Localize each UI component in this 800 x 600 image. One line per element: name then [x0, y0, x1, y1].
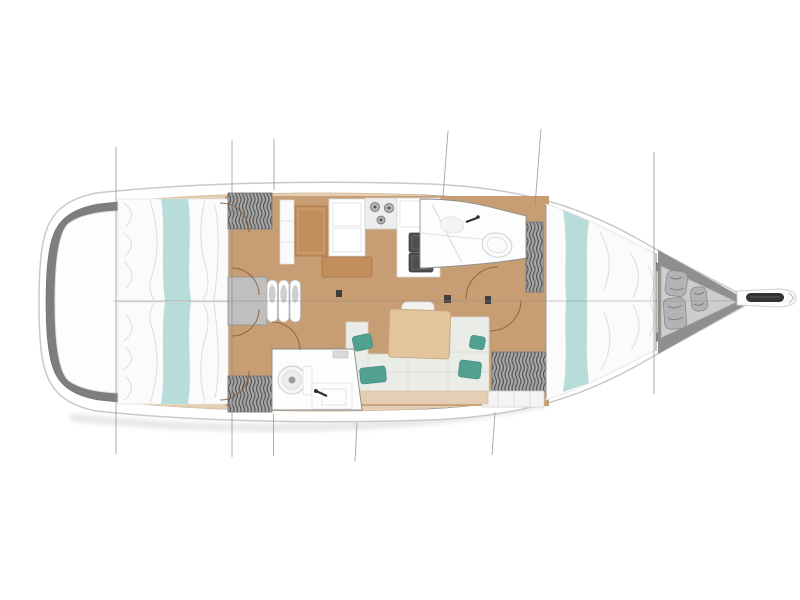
aft-head-toilet	[278, 366, 312, 395]
tall-locker	[280, 200, 294, 264]
fore-cabin	[546, 204, 656, 400]
sail-locker	[656, 250, 796, 354]
aft-head-sink	[312, 383, 352, 409]
berth-runner-teal	[161, 199, 191, 301]
aft-cabin-berth-top	[118, 199, 228, 301]
boat-floorplan-diagram	[0, 0, 800, 600]
aft-head	[272, 349, 362, 410]
galley-bench	[322, 257, 372, 277]
floorplan-canvas	[0, 0, 800, 600]
hanging-locker-front	[482, 391, 544, 407]
sofa-base-trim	[352, 391, 488, 404]
nav-station-desk	[295, 206, 327, 256]
galley-stove	[365, 198, 398, 229]
aft-cabin-berth-bottom	[118, 302, 228, 404]
transom-platform	[55, 211, 118, 393]
aft-head-shelf	[333, 351, 348, 358]
bowsprit	[737, 289, 796, 307]
saloon-table	[388, 309, 451, 359]
berth-runner-teal	[161, 302, 191, 404]
